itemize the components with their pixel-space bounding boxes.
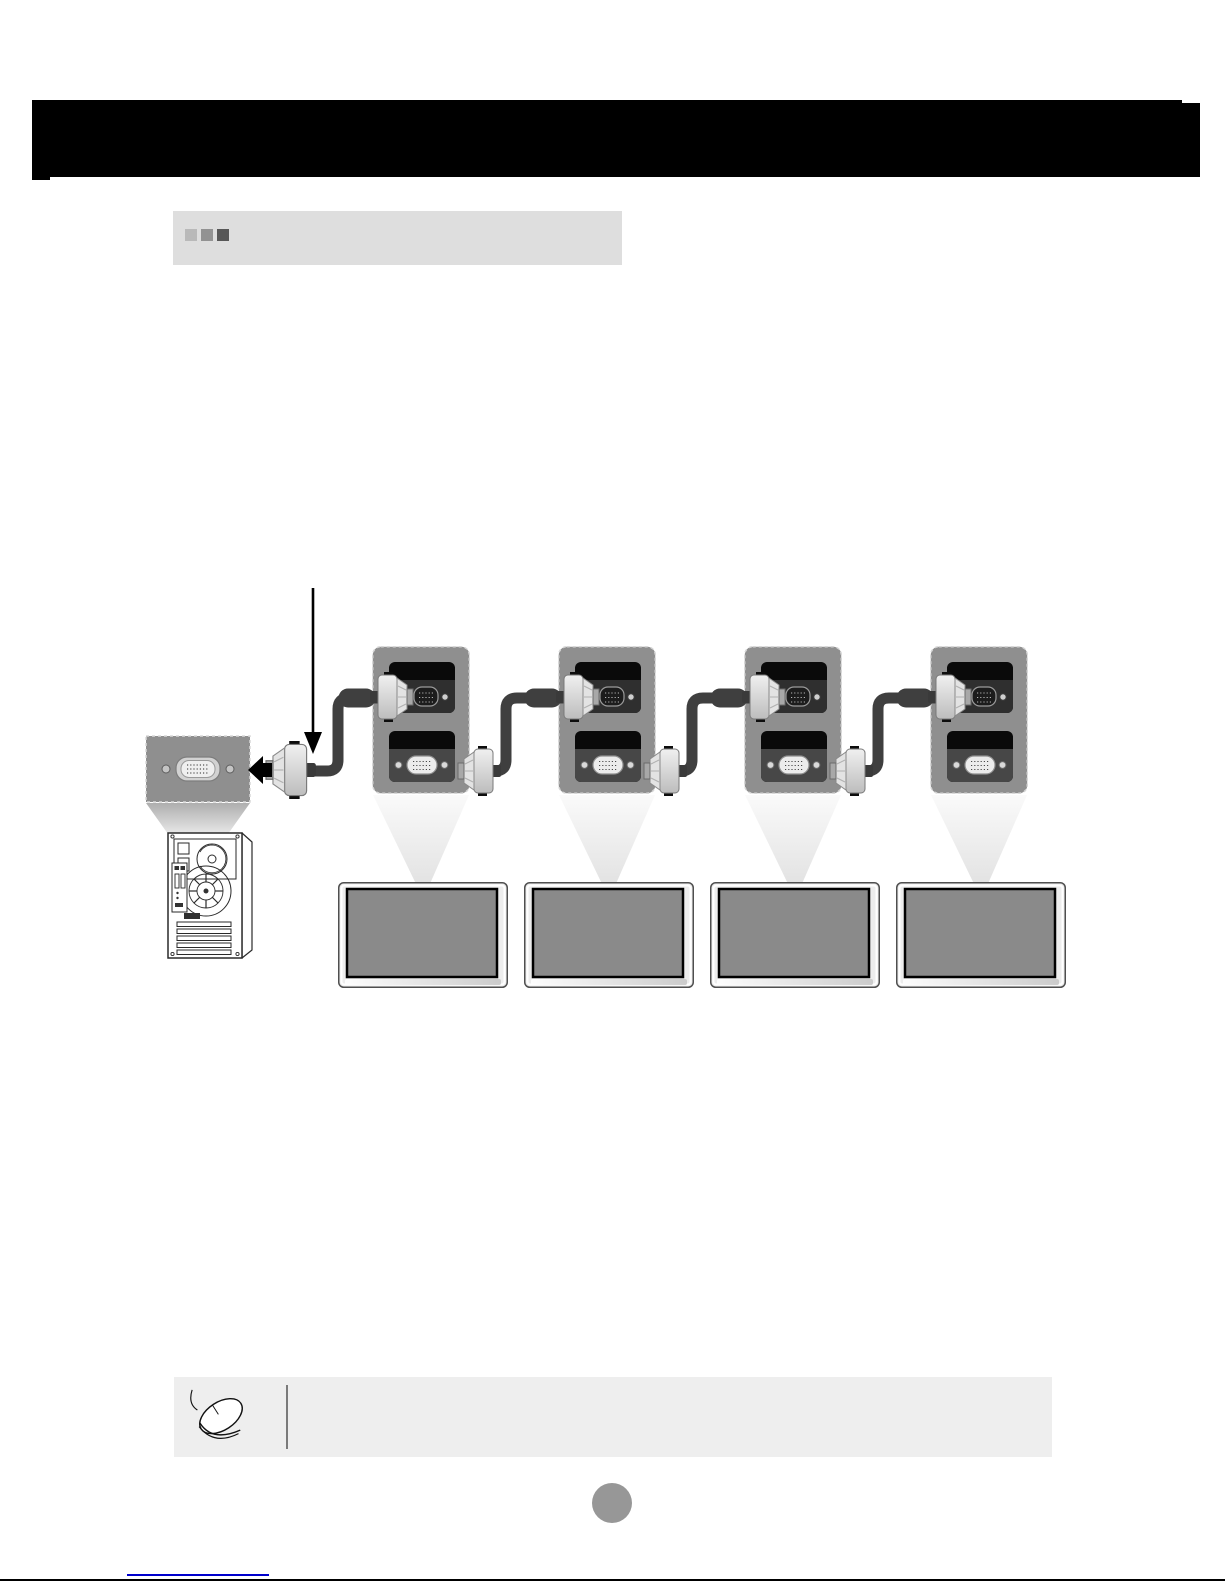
note-box: [174, 1377, 1052, 1457]
footer-link-underline[interactable]: [127, 1574, 269, 1576]
down-arrow-icon: [304, 588, 322, 754]
monitor-2: [525, 883, 694, 988]
header-bar-notch: [32, 177, 50, 180]
pc-tower: [168, 833, 252, 958]
header-bar-extension: [1182, 103, 1200, 177]
beam-3: [745, 795, 841, 886]
monitor-4: [897, 883, 1066, 988]
monitor-1: [339, 883, 508, 988]
beam-2: [559, 795, 655, 886]
header-bar: [32, 100, 1182, 177]
section-marker-squares: [185, 229, 229, 241]
footer-rule: [0, 1579, 1225, 1581]
monitor-3: [711, 883, 880, 988]
pc-port-callout: [146, 736, 250, 834]
page-number-badge: [592, 1483, 632, 1523]
daisy-chain-diagram: [0, 560, 1225, 1020]
section-heading-box: [173, 211, 622, 265]
manual-page: [0, 0, 1225, 1585]
marker-square: [217, 229, 229, 241]
mouse-icon: [186, 1387, 256, 1447]
marker-square: [201, 229, 213, 241]
beam-1: [373, 795, 469, 886]
note-divider: [286, 1385, 288, 1449]
beam-4: [931, 795, 1027, 886]
vga-connector-pc: [266, 741, 316, 799]
marker-square: [185, 229, 197, 241]
